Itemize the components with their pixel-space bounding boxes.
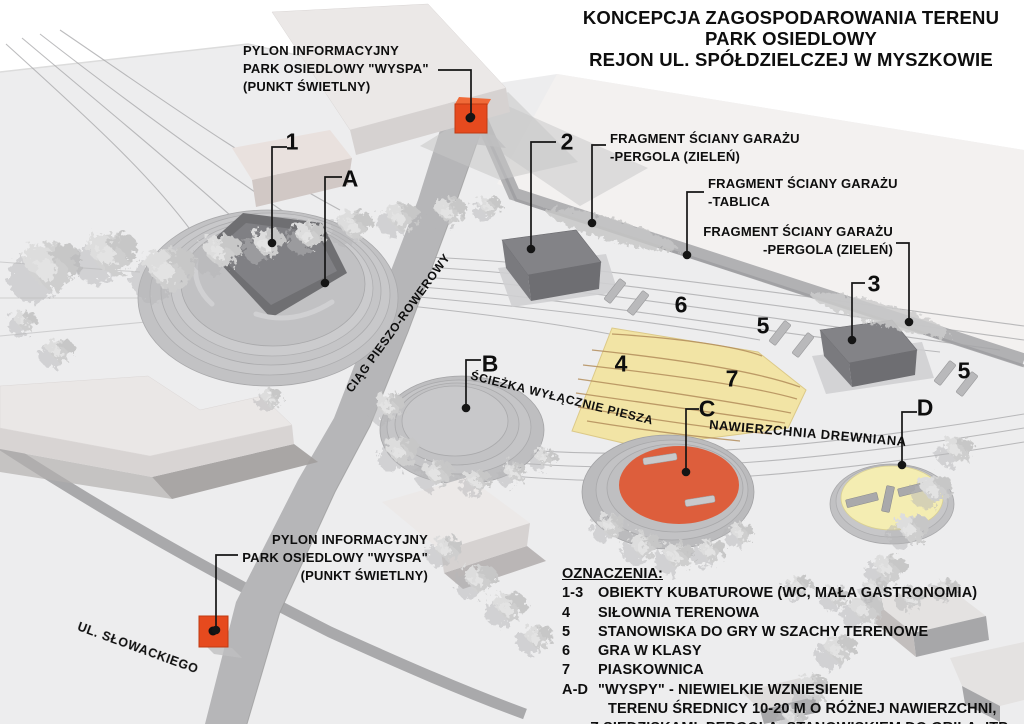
legend-continuation-2: Z SIEDZISKAMI, PERGOLĄ, STANOWISKIEM DO … <box>562 719 1022 724</box>
label-pylon-bottom-line2: PARK OSIEDLOWY "WYSPA" <box>198 549 428 567</box>
legend-key: 1-3 <box>562 584 598 603</box>
label-garage-tablica-line1: FRAGMENT ŚCIANY GARAŻU <box>708 175 898 193</box>
marker-4: 4 <box>615 351 628 378</box>
label-garage-tablica: FRAGMENT ŚCIANY GARAŻU -TABLICA <box>708 175 898 211</box>
label-garage-pergola-2-line2: -PERGOLA (ZIELEŃ) <box>653 241 893 259</box>
legend-heading: OZNACZENIA: <box>562 565 1022 584</box>
legend-text: OBIEKTY KUBATUROWE (WC, MAŁA GASTRONOMIA… <box>598 584 977 603</box>
legend-row: 7 PIASKOWNICA <box>562 661 1022 680</box>
legend-key: 7 <box>562 661 598 680</box>
legend-row: 4 SIŁOWNIA TERENOWA <box>562 604 1022 623</box>
label-pylon-top-line3: (PUNKT ŚWIETLNY) <box>243 78 429 96</box>
legend-row: 6 GRA W KLASY <box>562 642 1022 661</box>
marker-d: D <box>917 395 934 422</box>
label-garage-pergola-1-line2: -PERGOLA (ZIELEŃ) <box>610 148 800 166</box>
legend-row: 1-3 OBIEKTY KUBATUROWE (WC, MAŁA GASTRON… <box>562 584 1022 603</box>
label-garage-pergola-1-line1: FRAGMENT ŚCIANY GARAŻU <box>610 130 800 148</box>
marker-3: 3 <box>868 271 881 298</box>
label-pylon-top-line2: PARK OSIEDLOWY "WYSPA" <box>243 60 429 78</box>
legend-text: STANOWISKA DO GRY W SZACHY TERENOWE <box>598 623 928 642</box>
label-garage-tablica-line2: -TABLICA <box>708 193 898 211</box>
legend-row: A-D "WYSPY" - NIEWIELKIE WZNIESIENIE <box>562 681 1022 700</box>
legend: OZNACZENIA: 1-3 OBIEKTY KUBATUROWE (WC, … <box>562 565 1022 724</box>
legend-continuation-1: TERENU ŚREDNICY 10-20 M O RÓŻNEJ NAWIERZ… <box>562 700 1022 719</box>
marker-5-left: 5 <box>757 313 770 340</box>
marker-a: A <box>342 166 359 193</box>
site-plan: KONCEPCJA ZAGOSPODAROWANIA TERENU PARK O… <box>0 0 1024 724</box>
plan-title-line1: KONCEPCJA ZAGOSPODAROWANIA TERENU <box>563 7 1019 28</box>
legend-text: "WYSPY" - NIEWIELKIE WZNIESIENIE <box>598 681 863 700</box>
marker-5-right: 5 <box>958 358 971 385</box>
marker-7: 7 <box>726 366 739 393</box>
legend-key: 5 <box>562 623 598 642</box>
legend-row: 5 STANOWISKA DO GRY W SZACHY TERENOWE <box>562 623 1022 642</box>
plan-title: KONCEPCJA ZAGOSPODAROWANIA TERENU PARK O… <box>563 7 1019 70</box>
legend-key: 6 <box>562 642 598 661</box>
legend-text: PIASKOWNICA <box>598 661 704 680</box>
label-pylon-top: PYLON INFORMACYJNY PARK OSIEDLOWY "WYSPA… <box>243 42 429 96</box>
plan-title-line2: PARK OSIEDLOWY <box>563 28 1019 49</box>
label-pylon-bottom-line1: PYLON INFORMACYJNY <box>198 531 428 549</box>
marker-b: B <box>482 351 499 378</box>
legend-text: SIŁOWNIA TERENOWA <box>598 604 759 623</box>
plan-title-line3: REJON UL. SPÓŁDZIELCZEJ W MYSZKOWIE <box>563 49 1019 70</box>
marker-1: 1 <box>286 129 299 156</box>
marker-6: 6 <box>675 292 688 319</box>
label-pylon-bottom: PYLON INFORMACYJNY PARK OSIEDLOWY "WYSPA… <box>198 531 428 585</box>
label-pylon-top-line1: PYLON INFORMACYJNY <box>243 42 429 60</box>
legend-key: A-D <box>562 681 598 700</box>
legend-text: GRA W KLASY <box>598 642 702 661</box>
marker-2: 2 <box>561 129 574 156</box>
marker-c: C <box>699 396 716 423</box>
label-garage-pergola-1: FRAGMENT ŚCIANY GARAŻU -PERGOLA (ZIELEŃ) <box>610 130 800 166</box>
label-garage-pergola-2-line1: FRAGMENT ŚCIANY GARAŻU <box>653 223 893 241</box>
label-pylon-bottom-line3: (PUNKT ŚWIETLNY) <box>198 567 428 585</box>
legend-key: 4 <box>562 604 598 623</box>
label-garage-pergola-2: FRAGMENT ŚCIANY GARAŻU -PERGOLA (ZIELEŃ) <box>653 223 893 259</box>
